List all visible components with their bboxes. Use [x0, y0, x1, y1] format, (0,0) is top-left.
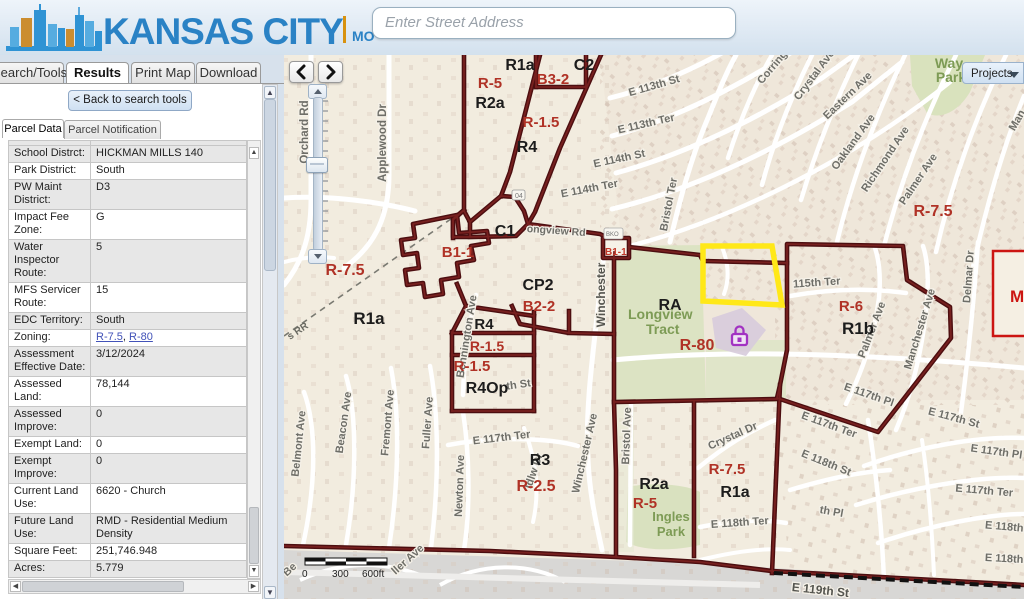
- svg-text:R-1.5: R-1.5: [470, 338, 504, 354]
- svg-text:R1a: R1a: [505, 57, 534, 74]
- svg-text:600ft: 600ft: [362, 569, 384, 580]
- svg-text:R2a: R2a: [475, 95, 504, 112]
- svg-text:0: 0: [302, 569, 308, 580]
- svg-text:B1-1: B1-1: [605, 247, 627, 258]
- svg-text:R-5: R-5: [478, 75, 502, 92]
- svg-text:R-1.5: R-1.5: [523, 114, 560, 131]
- svg-text:R4Op: R4Op: [466, 380, 509, 397]
- svg-text:R2a: R2a: [639, 476, 668, 493]
- svg-text:Park: Park: [657, 524, 686, 539]
- svg-text:C2: C2: [574, 57, 595, 74]
- svg-text:B1-1: B1-1: [442, 244, 475, 261]
- svg-text:R-80: R-80: [680, 337, 715, 354]
- svg-text:Winchester: Winchester: [594, 262, 608, 327]
- svg-text:Tract: Tract: [646, 321, 680, 337]
- svg-text:R1a: R1a: [353, 309, 385, 328]
- svg-text:R-1.5: R-1.5: [454, 358, 491, 375]
- svg-text:R3: R3: [530, 452, 551, 469]
- svg-text:M: M: [1010, 287, 1024, 306]
- svg-text:BKO: BKO: [606, 232, 619, 238]
- svg-text:E 118th: E 118th: [985, 552, 1024, 566]
- svg-text:04: 04: [515, 193, 523, 200]
- svg-text:R4: R4: [517, 139, 538, 156]
- svg-text:Orchard Rd: Orchard Rd: [299, 100, 311, 163]
- svg-text:C1: C1: [495, 223, 516, 240]
- svg-text:R1a: R1a: [720, 484, 749, 501]
- svg-text:B3-2: B3-2: [537, 71, 570, 88]
- svg-text:300: 300: [332, 569, 349, 580]
- svg-text:Bristol Ave: Bristol Ave: [620, 407, 634, 465]
- svg-text:Applewood Dr: Applewood Dr: [377, 104, 389, 182]
- svg-text:Ingles: Ingles: [652, 509, 690, 524]
- svg-text:R-7.5: R-7.5: [913, 203, 952, 220]
- svg-text:B2-2: B2-2: [523, 298, 556, 315]
- svg-text:R-6: R-6: [839, 298, 863, 315]
- svg-text:R-7.5: R-7.5: [325, 262, 364, 279]
- svg-text:R-7.5: R-7.5: [709, 461, 746, 478]
- svg-text:R-2.5: R-2.5: [516, 478, 555, 495]
- svg-text:R4: R4: [474, 316, 494, 333]
- svg-text:Longview: Longview: [628, 306, 693, 322]
- svg-text:CP2: CP2: [522, 277, 553, 294]
- svg-text:Newton Ave: Newton Ave: [453, 455, 467, 518]
- svg-text:R1b: R1b: [842, 319, 874, 338]
